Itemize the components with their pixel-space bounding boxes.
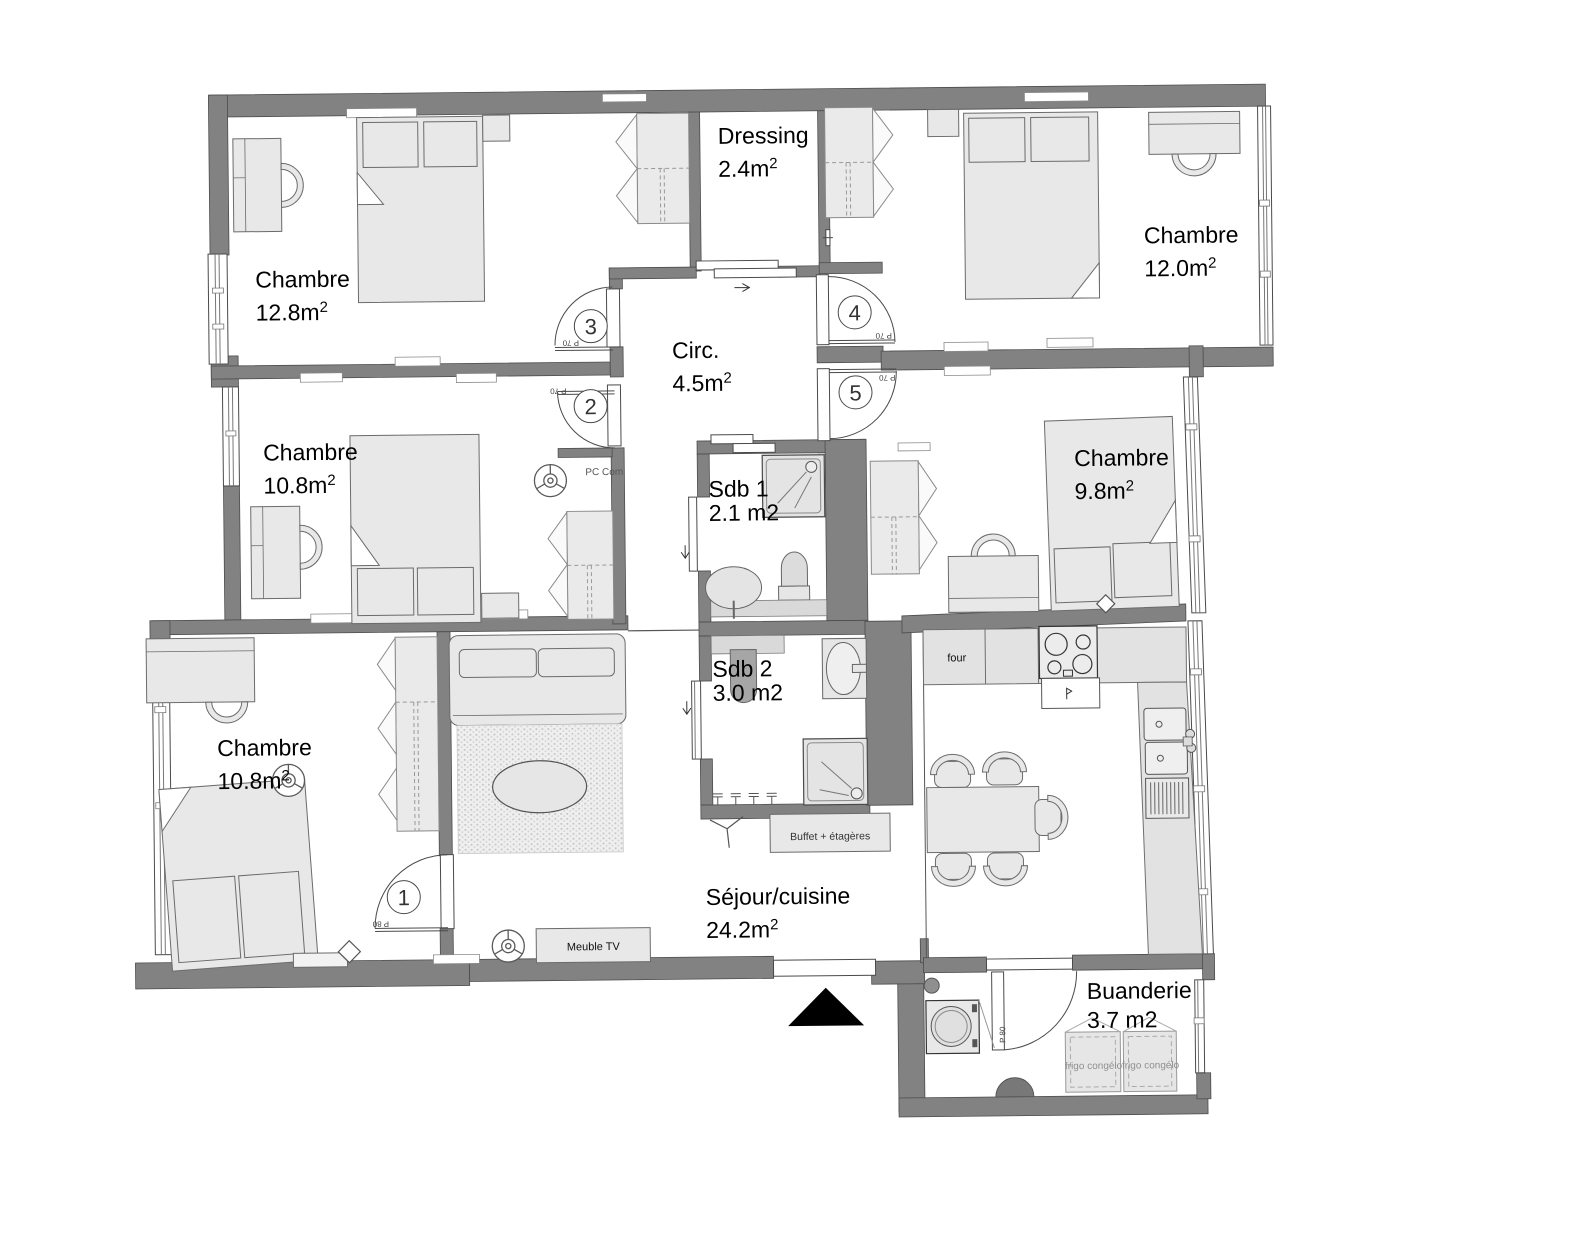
svg-text:2.4m2: 2.4m2: [718, 155, 778, 182]
svg-text:1: 1: [398, 885, 411, 910]
svg-text:12.0m2: 12.0m2: [1144, 255, 1217, 282]
svg-text:Sdb 1: Sdb 1: [708, 475, 768, 502]
svg-text:Buffet + étagères: Buffet + étagères: [790, 830, 870, 843]
svg-text:3.0 m2: 3.0 m2: [713, 679, 784, 706]
svg-text:P 80: P 80: [372, 919, 389, 928]
svg-text:9.8m2: 9.8m2: [1074, 477, 1134, 504]
svg-text:Circ.: Circ.: [672, 337, 720, 363]
svg-text:2.1 m2: 2.1 m2: [709, 499, 780, 526]
svg-text:Dressing: Dressing: [718, 122, 809, 149]
svg-text:10.8m2: 10.8m2: [217, 767, 290, 794]
svg-text:four: four: [947, 652, 966, 664]
svg-text:P 80: P 80: [998, 1026, 1007, 1043]
svg-text:12.8m2: 12.8m2: [256, 299, 329, 326]
svg-text:3.7 m2: 3.7 m2: [1087, 1006, 1158, 1033]
svg-text:Chambre: Chambre: [263, 439, 358, 466]
svg-text:P 70: P 70: [878, 373, 895, 382]
svg-text:10.8m2: 10.8m2: [263, 472, 336, 499]
svg-text:Meuble TV: Meuble TV: [567, 941, 621, 954]
svg-text:Chambre: Chambre: [217, 734, 312, 761]
svg-text:Séjour/cuisine: Séjour/cuisine: [706, 882, 851, 910]
svg-text:24.2m2: 24.2m2: [706, 916, 779, 943]
svg-text:P 70: P 70: [875, 331, 892, 340]
svg-text:frigo congélo: frigo congélo: [1065, 1061, 1123, 1073]
svg-text:Sdb 2: Sdb 2: [712, 655, 772, 682]
svg-text:Chambre: Chambre: [1144, 221, 1239, 248]
svg-text:Buanderie: Buanderie: [1087, 977, 1192, 1004]
svg-text:PC Com: PC Com: [585, 467, 623, 478]
svg-text:4: 4: [848, 300, 861, 325]
svg-text:3: 3: [585, 314, 598, 339]
svg-text:P 70: P 70: [550, 386, 567, 395]
svg-text:Chambre: Chambre: [255, 266, 350, 293]
svg-text:P 70: P 70: [562, 338, 579, 347]
svg-text:5: 5: [849, 380, 862, 405]
svg-text:4.5m2: 4.5m2: [672, 370, 732, 397]
svg-text:Chambre: Chambre: [1074, 444, 1169, 471]
svg-text:frigo congélo: frigo congélo: [1122, 1060, 1180, 1072]
svg-text:2: 2: [584, 394, 597, 419]
